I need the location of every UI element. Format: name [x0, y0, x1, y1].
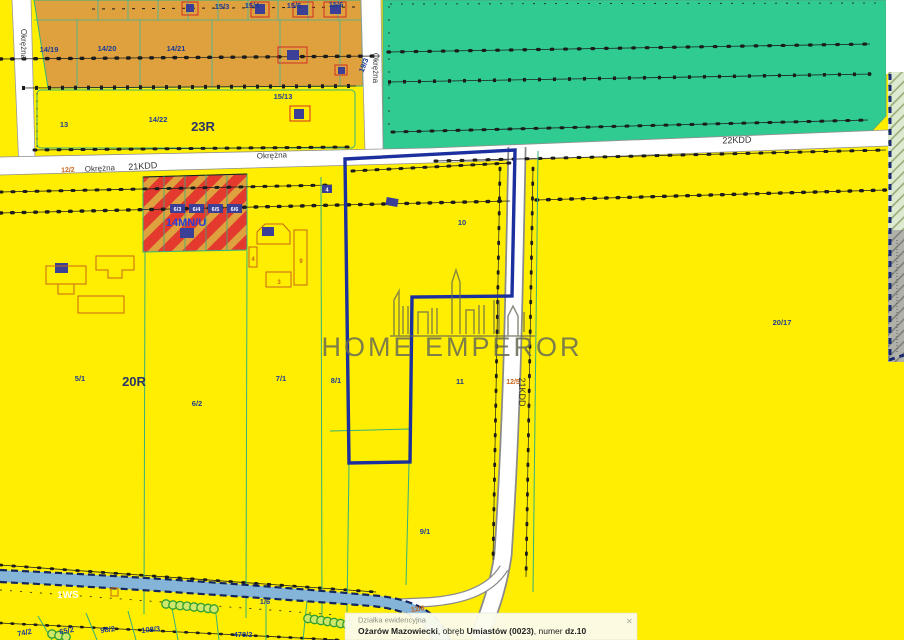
parcel-label: 1/6	[260, 597, 270, 606]
street-label-22kdd: 22KDD	[722, 134, 752, 145]
street-label-okrezna: Okrężna	[85, 163, 116, 174]
parcel-label: 20/17	[773, 318, 792, 327]
street-label-okrezna: Okrężna	[257, 150, 288, 160]
zone-label-1ws: 1WS	[57, 590, 79, 601]
parcel-label: 10	[458, 218, 466, 227]
parcel-label: 15/13	[274, 92, 293, 101]
info-panel-title: Działka ewidencyjna	[358, 616, 427, 625]
parcel-label: 6/2	[192, 399, 202, 408]
zone-hatched-strip	[888, 72, 904, 362]
info-panel: Działka ewidencyjna Ożarów Mazowiecki, o…	[345, 613, 637, 640]
parcel-label: 6/6	[231, 207, 239, 213]
zone-label-14mnu: 14MN/U	[166, 217, 206, 229]
road-corner-white	[886, 0, 904, 74]
parcel-label: 470/2	[234, 630, 253, 639]
parcel-label: 6/4	[193, 207, 202, 213]
parcel-label: 14/20	[98, 44, 117, 53]
map-canvas[interactable]: HOME EMPEROR 15/3 15/4 15/5 15/6 14/19 1…	[0, 0, 904, 640]
street-label-21kdd-vertical: 21KDD	[517, 377, 527, 407]
parcel-label: 6/5	[212, 207, 220, 213]
parcel-label: 15/6	[329, 0, 344, 9]
parcel-label: 15/5	[287, 1, 302, 10]
parcel-label: 15/4	[245, 1, 260, 10]
parcel-label: 6/3	[174, 207, 182, 213]
parcel-label: 14/22	[149, 115, 168, 124]
info-panel-details: Ożarów Mazowiecki, obręb Umiastów (0023)…	[358, 626, 586, 636]
close-icon[interactable]: ✕	[626, 617, 633, 626]
parcel-label: 9/1	[420, 527, 430, 536]
parcel-label: 14/19	[40, 45, 59, 54]
zone-label-20R: 20R	[122, 374, 146, 389]
street-label-okrezna: Okrężna	[19, 29, 28, 60]
parcel-label: 8/1	[331, 376, 341, 385]
parcel-label: 14/21	[167, 44, 186, 53]
zone-label-23R: 23R	[191, 119, 215, 134]
parcel-label: 11	[456, 377, 464, 386]
parcel-label: 7/1	[276, 374, 286, 383]
parcel-label: 13	[60, 120, 68, 129]
parcel-label: 5/1	[75, 374, 85, 383]
parcel-label: 15/3	[215, 2, 230, 11]
watermark-text: HOME EMPEROR	[321, 332, 582, 362]
parcel-label: 12/2	[61, 167, 75, 175]
street-label-okrezna: Okrężna	[371, 53, 380, 84]
street-label-21kdd: 21KDD	[128, 160, 158, 172]
